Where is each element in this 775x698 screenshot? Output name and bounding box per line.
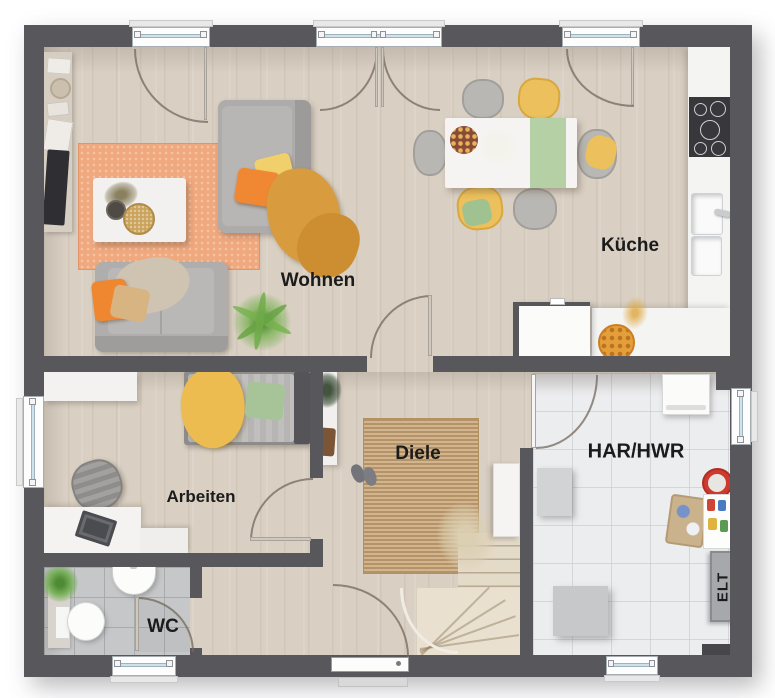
door-leaf: [631, 47, 634, 105]
window-handle: [737, 436, 744, 443]
window-glass: [321, 34, 437, 38]
room-label-electrical: ELT: [715, 572, 732, 602]
utility-box-bottom: [553, 586, 608, 636]
sink-basin-2: [691, 236, 722, 276]
floor-plan: Wohnen Küche Arbeiten Diele WC HAR/HWR E…: [0, 0, 775, 698]
room-label-wc: WC: [147, 616, 179, 638]
window-handle: [564, 31, 571, 38]
room-label-hall: Diele: [395, 443, 440, 465]
wall-utility-pier: [716, 368, 752, 390]
window-sill: [604, 675, 660, 682]
sofa-pillow-tan: [109, 284, 151, 323]
window-handle: [114, 660, 121, 667]
burner-4: [694, 142, 707, 155]
window-handle: [29, 398, 36, 405]
window-glass: [118, 663, 170, 667]
window-glass: [567, 34, 635, 38]
door-leaf: [135, 597, 139, 651]
wall-left: [24, 25, 44, 677]
window-handle: [29, 479, 36, 486]
daybed-headboard: [294, 372, 310, 444]
office-shelf: [44, 372, 137, 401]
room-label-utility: HAR/HWR: [588, 441, 685, 464]
window-sill: [313, 20, 445, 27]
burner-1: [694, 103, 707, 116]
window-handle: [737, 390, 744, 397]
door-leaf: [428, 295, 432, 356]
cleaning-bottle-3: [708, 518, 717, 530]
wc-plant: [42, 564, 78, 602]
utility-box-left: [537, 468, 572, 516]
entrance-door-handle: [396, 661, 401, 666]
door-leaf: [204, 47, 207, 120]
window-handle: [200, 31, 207, 38]
window-handle: [433, 31, 440, 38]
window-handle: [134, 31, 141, 38]
toilet-bowl: [67, 602, 105, 641]
entrance-step: [338, 677, 408, 687]
chair-gray-1: [462, 79, 504, 119]
window-glass: [739, 394, 743, 439]
window-glass: [137, 34, 205, 38]
daybed-pillow-green: [244, 381, 286, 421]
wall-right: [730, 25, 752, 677]
sideboard-books-2: [46, 101, 69, 117]
window-handle: [166, 660, 173, 667]
window-sill: [751, 391, 758, 442]
tall-cabinet: [513, 302, 590, 356]
wall-utility-left: [520, 448, 533, 656]
table-runner: [530, 118, 566, 188]
bucket-inner: [708, 474, 726, 492]
door-leaf: [375, 47, 378, 107]
centerpiece-flowers: [478, 128, 518, 166]
room-label-kitchen: Küche: [601, 235, 659, 257]
cleaning-bottle-4: [720, 520, 728, 532]
window-handle: [380, 31, 386, 38]
wall-office-right-a: [310, 372, 323, 478]
cleaning-bottle-1: [707, 499, 715, 511]
table-tray: [123, 203, 155, 235]
room-label-office: Arbeiten: [167, 487, 236, 507]
wall-middle-right: [433, 356, 730, 372]
door-leaf: [531, 374, 536, 448]
window-handle: [649, 660, 655, 667]
sideboard-board: [43, 118, 74, 154]
wall-office-bottom: [44, 553, 323, 567]
sideboard-books: [46, 57, 71, 75]
burner-2: [710, 101, 726, 117]
washing-machine-panel: [666, 405, 706, 410]
burner-3: [700, 120, 720, 140]
cabinet-handle: [550, 298, 565, 305]
wall-middle-left: [44, 356, 367, 372]
window-handle: [630, 31, 637, 38]
door-leaf: [381, 47, 384, 107]
chair-gray-4: [513, 188, 557, 230]
wall-wc-right-a: [190, 567, 202, 598]
door-leaf: [250, 537, 311, 541]
desk-extension: [141, 528, 188, 554]
window-sill: [16, 398, 23, 486]
stair-partition-wall: [493, 463, 520, 537]
window-handle: [608, 660, 614, 667]
window-handle: [371, 31, 377, 38]
centerpiece-bowl: [450, 126, 478, 154]
sideboard-decor-ring: [50, 78, 71, 99]
window-sill: [129, 20, 213, 27]
window-glass: [612, 663, 652, 667]
room-label-living: Wohnen: [281, 270, 356, 292]
window-handle: [318, 31, 325, 38]
window-sill: [110, 676, 178, 683]
window-sill: [559, 20, 643, 27]
sofa-main-back: [95, 336, 228, 352]
cleaning-bottle-2: [718, 500, 726, 511]
burner-5: [711, 141, 726, 156]
chair-gray-2: [413, 130, 447, 176]
window-glass: [31, 402, 35, 482]
